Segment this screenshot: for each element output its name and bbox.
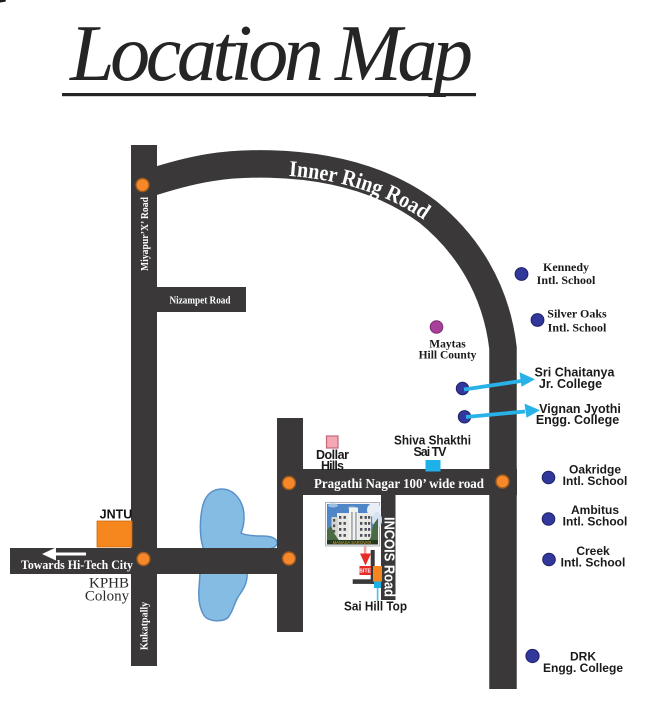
svg-text:Kukatpally: Kukatpally <box>140 602 151 650</box>
svg-text:JNTU: JNTU <box>100 508 133 522</box>
svg-text:Intl. School: Intl. School <box>548 321 607 335</box>
svg-text:Kennedy: Kennedy <box>543 260 589 274</box>
svg-text:Intl. School: Intl. School <box>563 474 628 488</box>
svg-text:Intl. School: Intl. School <box>561 556 626 570</box>
svg-text:Sai Hill Top: Sai Hill Top <box>344 599 407 614</box>
svg-text:Intl. School: Intl. School <box>537 273 596 287</box>
svg-text:Sai TV: Sai TV <box>414 445 448 459</box>
svg-text:Engg. College: Engg. College <box>543 661 623 675</box>
svg-text:Jr. College: Jr. College <box>539 377 602 391</box>
svg-text:MANASA SAROVAR: MANASA SAROVAR <box>333 540 372 545</box>
svg-text:Miyapur’X’ Road: Miyapur’X’ Road <box>139 197 151 271</box>
svg-text:Towards Hi-Tech City: Towards Hi-Tech City <box>21 558 134 572</box>
svg-text:Engg. College: Engg. College <box>536 413 619 427</box>
svg-text:Pragathi Nagar 100’ wide road: Pragathi Nagar 100’ wide road <box>314 477 484 492</box>
svg-text:INCOIS Road: INCOIS Road <box>381 517 398 597</box>
svg-text:Hill County: Hill County <box>419 350 477 362</box>
svg-text:Hills: Hills <box>321 459 344 473</box>
svg-text:Nizampet Road: Nizampet Road <box>170 295 231 307</box>
svg-text:Silver Oaks: Silver Oaks <box>547 307 607 321</box>
svg-text:SITE: SITE <box>359 569 371 575</box>
svg-text:Location Map: Location Map <box>69 10 473 98</box>
svg-text:Colony: Colony <box>85 589 130 605</box>
svg-text:Intl. School: Intl. School <box>563 515 628 529</box>
